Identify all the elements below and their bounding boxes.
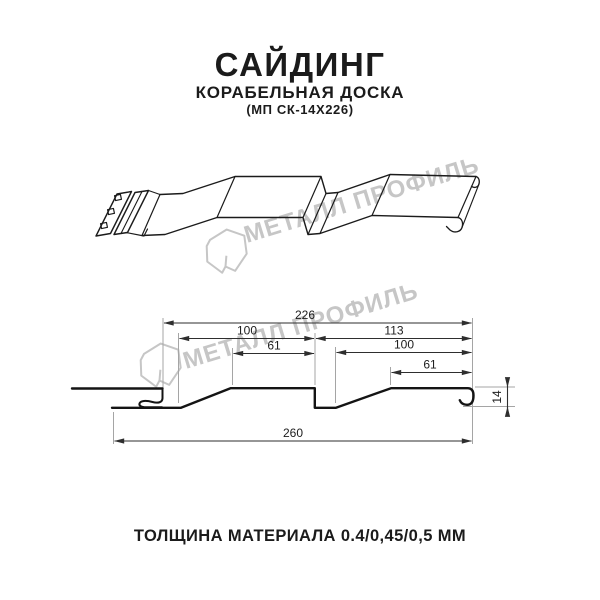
profile-outline (72, 388, 474, 408)
dim-label-61-left: 61 (267, 339, 281, 353)
dim-label-61-right: 61 (423, 358, 437, 372)
dim-label-226: 226 (295, 308, 315, 322)
dim-label-14: 14 (490, 390, 504, 404)
watermark-text: МЕТАЛЛ ПРОФИЛЬ (241, 151, 483, 248)
material-thickness-note: ТОЛЩИНА МАТЕРИАЛА 0.4/0,45/0,5 ММ (0, 527, 600, 546)
dim-label-260: 260 (283, 426, 303, 440)
lock-curl (139, 389, 162, 408)
dim-label-113: 113 (384, 324, 403, 338)
siding-spec-sheet: САЙДИНГ КОРАБЕЛЬНАЯ ДОСКА (МП СК-14Х226)… (0, 0, 600, 600)
dim-100-right: 100 (337, 338, 472, 353)
extension-lines (114, 318, 516, 444)
dim-label-100-left: 100 (237, 324, 257, 338)
nail-strip-holes (101, 194, 122, 228)
watermark-upper: МЕТАЛЛ ПРОФИЛЬ (200, 151, 483, 277)
dim-label-100-right: 100 (394, 338, 414, 352)
lock-hem-fold-line (121, 192, 142, 234)
dim-14: 14 (490, 379, 508, 417)
hem-cap (149, 191, 161, 195)
technical-drawing: МЕТАЛЛ ПРОФИЛЬ МЕТАЛЛ ПРОФИЛЬ (0, 0, 600, 600)
dim-260: 260 (115, 426, 472, 441)
metall-profil-logo-icon (134, 339, 187, 392)
dim-61-right: 61 (392, 358, 472, 373)
watermark-lower: МЕТАЛЛ ПРОФИЛЬ (134, 277, 422, 391)
profile-body (112, 388, 474, 408)
